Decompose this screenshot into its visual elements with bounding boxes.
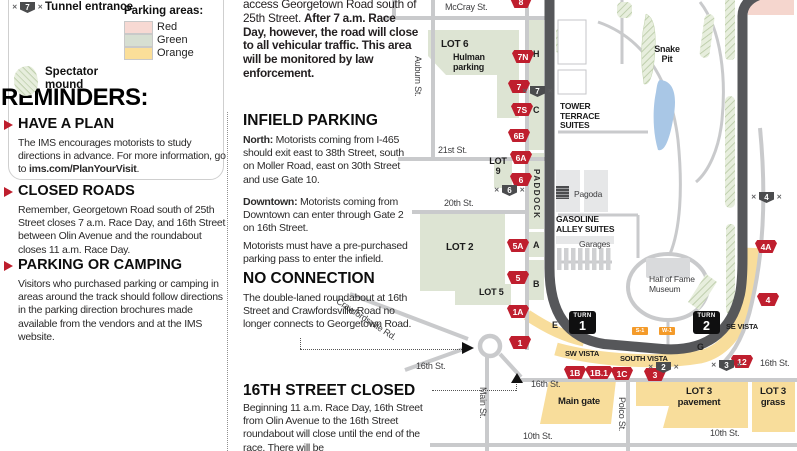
infield-downtown-body: Downtown: Motorists coming from Downtown…	[243, 196, 413, 236]
tunnel-entrance-3: 3	[719, 360, 734, 371]
street-label-polco: Polco St.	[617, 397, 627, 451]
legend-tunnel-label: Tunnel entrance	[45, 1, 133, 14]
have-a-plan-body: The IMS encourages motorists to study di…	[18, 137, 230, 177]
street-label-mccray: McCray St.	[445, 2, 488, 12]
swatch-red	[124, 21, 153, 34]
closed-roads-body: Remember, Georgetown Road south of 25th …	[18, 204, 230, 257]
hulman-line1: Hulman	[453, 52, 485, 62]
swatch-red-label: Red	[157, 21, 177, 33]
turn-1-badge: TURN1	[569, 311, 596, 334]
roundabout-arrow-icon	[462, 342, 474, 354]
street-label-10th-east: 10th St.	[710, 428, 739, 438]
tunnel-2-badge: 2	[656, 362, 671, 373]
street-label-16th-west: 16th St.	[416, 361, 445, 371]
section-arrow-icon	[4, 187, 13, 197]
street-closed-pointer-line	[432, 390, 516, 391]
swatch-green-label: Green	[157, 34, 188, 46]
swatch-green	[124, 34, 153, 47]
museum-line1: Hall of Fame	[649, 274, 695, 284]
tunnel-entrance-7: 7	[530, 86, 545, 97]
hulman-line2: parking	[453, 62, 484, 72]
area-label-sw-vista: SW VISTA	[565, 349, 599, 358]
gas-line2: ALLEY SUITES	[556, 224, 614, 234]
tunnel-entrance-4: 4	[759, 192, 774, 203]
section-arrow-icon	[4, 261, 13, 271]
turn-1-number: 1	[579, 320, 586, 333]
stand-letter-b: B	[533, 279, 540, 289]
street-label-16th-east: 16th St.	[760, 358, 789, 368]
swatch-orange-label: Orange	[157, 47, 194, 59]
area-label-lot2: LOT 2	[446, 242, 473, 253]
museum-line2: Museum	[649, 284, 680, 294]
mini-badge-w1: W-1	[659, 327, 675, 335]
stand-letter-e: E	[552, 320, 558, 330]
street-label-main: Main St.	[478, 387, 488, 447]
stand-letter-g: G	[697, 342, 704, 352]
area-label-lot3-grass: LOT 3grass	[747, 387, 797, 408]
area-label-lot3-pavement: LOT 3pavement	[666, 387, 732, 408]
infield-pass-note: Motorists must have a pre-purchased park…	[243, 240, 413, 266]
street-label-16th-mid: 16th St.	[531, 379, 560, 389]
snake-line1: Snake	[654, 44, 680, 54]
lot3p-line1: LOT 3	[686, 386, 712, 397]
mini-badge-s1: S-1	[632, 327, 648, 335]
pagoda-icon	[556, 186, 569, 199]
georgetown-road-note: access Georgetown Road south of 25th Str…	[243, 0, 419, 81]
area-label-pagoda: Pagoda	[574, 189, 602, 199]
lot3p-line2: pavement	[678, 397, 721, 408]
area-label-garages: Garages	[579, 239, 610, 249]
parking-camping-body: Visitors who purchased parking or campin…	[18, 278, 232, 344]
area-label-museum: Hall of FameMuseum	[649, 275, 695, 294]
stand-letter-h: H	[533, 49, 540, 59]
tunnel-3-badge: 3	[719, 360, 734, 371]
downtown-label: Downtown:	[243, 196, 297, 208]
ims-parking-map-infographic: 7 Tunnel entrance Spectator mound Parkin…	[0, 0, 797, 451]
street-closed-body: Beginning 11 a.m. Race Day, 16th Street …	[243, 402, 423, 451]
gas-line1: GASOLINE	[556, 214, 599, 224]
tunnel-entrance-2: 2	[656, 362, 671, 373]
closed-roads-heading: CLOSED ROADS	[18, 183, 135, 199]
swatch-orange	[124, 47, 153, 60]
turn-2-number: 2	[703, 320, 710, 333]
no-connection-heading: NO CONNECTION	[243, 270, 375, 288]
spectator-mound-icon	[14, 66, 38, 96]
area-label-lot6: LOT 6	[441, 39, 468, 50]
no-connection-pointer-line	[300, 349, 462, 350]
tunnel-7-badge: 7	[530, 86, 545, 97]
street-closed-heading: 16TH STREET CLOSED	[243, 382, 415, 400]
area-label-lot5: LOT 5	[479, 287, 504, 297]
area-label-hulman: Hulmanparking	[453, 52, 485, 72]
have-a-plan-suffix: .	[137, 163, 140, 175]
lot3g-line2: grass	[761, 397, 785, 408]
section-arrow-icon	[4, 120, 13, 130]
plan-your-visit-link[interactable]: ims.com/PlanYourVisit	[29, 163, 137, 175]
lot9-line2: 9	[496, 166, 501, 176]
have-a-plan-heading: HAVE A PLAN	[18, 116, 114, 132]
tunnel-badge: 7	[20, 2, 35, 13]
area-label-tower-terrace: TOWERTERRACESUITES	[560, 102, 600, 131]
street-label-10th-west: 10th St.	[523, 431, 552, 441]
tunnel-6-badge: 6	[502, 185, 517, 196]
area-label-main-gate: Main gate	[550, 396, 608, 407]
area-label-paddock: PADDOCK	[529, 155, 544, 233]
parking-camping-heading: PARKING OR CAMPING	[18, 257, 182, 273]
area-label-se-vista: SE VISTA	[726, 322, 758, 331]
tunnel-entrance-6: 6	[502, 185, 517, 196]
north-label: North:	[243, 134, 273, 146]
tunnel-4-badge: 4	[759, 192, 774, 203]
infield-north-body: North: Motorists coming from I-465 shoul…	[243, 134, 413, 187]
legend-parking-title: Parking areas:	[124, 5, 203, 18]
stand-letter-a: A	[533, 240, 540, 250]
no-connection-pointer-line	[300, 338, 301, 349]
snake-line2: Pit	[662, 54, 673, 64]
street-label-20th: 20th St.	[444, 198, 473, 208]
street-label-21st: 21st St.	[438, 145, 467, 155]
lot3g-line1: LOT 3	[760, 386, 786, 397]
sixteenth-street-arrow-icon	[511, 373, 523, 383]
turn-2-badge: TURN2	[693, 311, 720, 334]
lot9-line1: LOT	[489, 156, 506, 166]
area-label-gasoline-alley: GASOLINEALLEY SUITES	[556, 215, 614, 234]
stand-letter-c: C	[533, 105, 540, 115]
tower-line1: TOWER	[560, 101, 590, 111]
no-connection-body: The double-laned roundabout at 16th Stre…	[243, 292, 413, 332]
street-closed-pointer-line	[516, 384, 517, 391]
tunnel-entrance-icon: 7	[20, 2, 35, 13]
area-label-snake-pit: SnakePit	[649, 44, 685, 64]
legend-mound-label: Spectator mound	[45, 66, 117, 91]
infield-parking-heading: INFIELD PARKING	[243, 112, 378, 130]
area-label-lot9: LOT9	[486, 157, 510, 176]
tower-line3: SUITES	[560, 120, 590, 130]
tower-line2: TERRACE	[560, 111, 600, 121]
